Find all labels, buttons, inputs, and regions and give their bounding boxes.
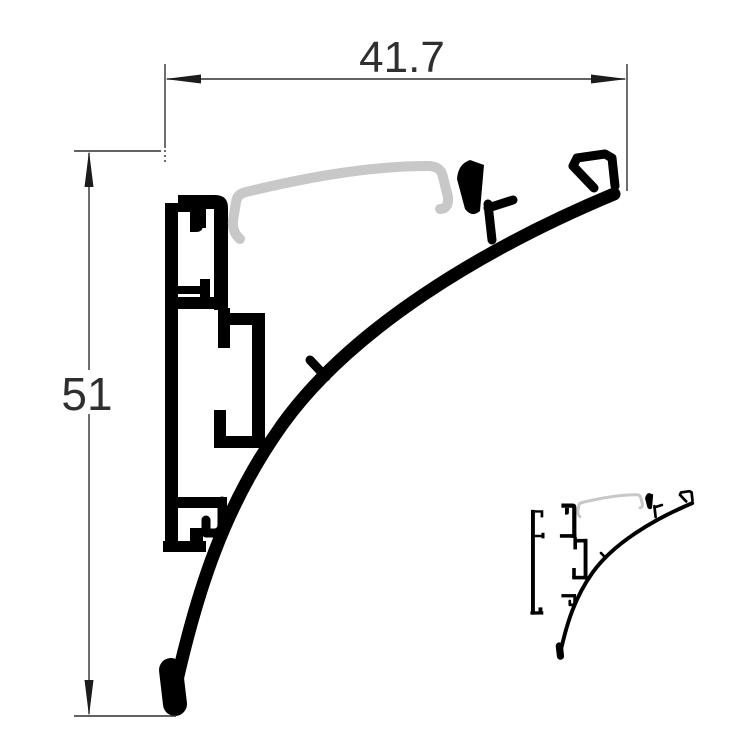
height-dimension-label: 51 — [61, 368, 112, 420]
main-profile-body — [171, 154, 615, 704]
width-dimension-label: 41.7 — [359, 33, 445, 82]
inset-exploded-view — [530, 491, 692, 656]
cad-drawing-page: 41.7 51 — [0, 0, 750, 750]
inset-profile-body — [559, 491, 692, 656]
main-assembled-view — [163, 154, 615, 704]
profile-cross-section-drawing: 41.7 51 — [0, 0, 750, 750]
inset-wall-plate — [530, 510, 544, 615]
height-dimension: 51 — [58, 151, 176, 716]
